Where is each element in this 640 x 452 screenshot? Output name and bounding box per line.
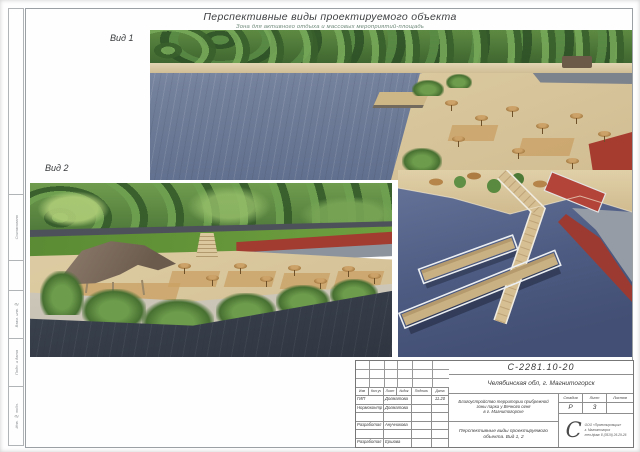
row5-role bbox=[356, 430, 384, 439]
plaza-bush bbox=[454, 176, 466, 188]
listov-label: Листов bbox=[607, 394, 633, 403]
margin-label-vzam: Взам. инв. № bbox=[14, 302, 19, 327]
listov-value bbox=[607, 403, 633, 414]
col-ndok: №док bbox=[397, 388, 412, 396]
row3-role bbox=[356, 413, 384, 422]
row2-sign bbox=[412, 405, 432, 414]
umbrella bbox=[566, 158, 579, 164]
umbrella bbox=[533, 181, 547, 188]
sheet-title-block: Перспективные виды проектируемого объект… bbox=[150, 11, 510, 30]
bush bbox=[82, 289, 146, 325]
wood-deck bbox=[517, 138, 574, 156]
col-data: Дата bbox=[432, 388, 449, 396]
shrub bbox=[446, 74, 472, 88]
margin-cell-inv: Инв. № подл. bbox=[9, 387, 23, 445]
stage-label: Стадия bbox=[559, 394, 583, 403]
row4-date bbox=[432, 422, 449, 431]
margin-cell-vzam: Взам. инв. № bbox=[9, 291, 23, 339]
logo-cell: С ООО «Проектировщик» г. Магнитогорск те… bbox=[559, 414, 633, 447]
project-line3: в г. Магнитогорске bbox=[483, 410, 523, 415]
drawing-sheet: Согласовано Взам. инв. № Подп. и дата Ин… bbox=[0, 0, 640, 452]
umbrella bbox=[206, 275, 219, 281]
row6-role: Разработал bbox=[356, 439, 384, 448]
umbrella bbox=[536, 123, 549, 129]
pier-scene-graphic bbox=[398, 170, 632, 357]
margin-cell-agreed: Согласовано bbox=[9, 195, 23, 261]
grid-line bbox=[412, 361, 413, 388]
umbrella bbox=[598, 131, 611, 137]
col-koluch: Кол.уч bbox=[369, 388, 384, 396]
company-line2: г. Магнитогорск bbox=[585, 428, 610, 432]
grid-line bbox=[369, 361, 370, 388]
row3-sign bbox=[412, 413, 432, 422]
row6-name: Ершова bbox=[384, 439, 412, 448]
umbrella bbox=[570, 113, 583, 119]
row1-sign bbox=[412, 396, 432, 405]
col-list: Лист bbox=[384, 388, 397, 396]
row1-date: 11.20 bbox=[432, 396, 449, 405]
grid-line bbox=[397, 361, 398, 388]
row2-role: Нормоконтр bbox=[356, 405, 384, 414]
project-name: Благоустройство территории прибрежной зо… bbox=[449, 394, 559, 422]
margin-cell-blank2 bbox=[9, 261, 23, 291]
plaza-bush bbox=[487, 179, 501, 193]
margin-label-inv: Инв. № подл. bbox=[14, 403, 19, 429]
company-line3: тел./факс 8 (3519) 26-29-26 bbox=[585, 433, 627, 437]
row5-date bbox=[432, 430, 449, 439]
company-logo: С bbox=[566, 420, 582, 441]
bush bbox=[40, 271, 84, 315]
drawing-title: Перспективные виды проектируемого объект… bbox=[449, 422, 559, 447]
row4-role: Разработал bbox=[356, 422, 384, 431]
stamp-minigrid bbox=[356, 361, 449, 388]
umbrella bbox=[429, 179, 443, 186]
row6-date bbox=[432, 439, 449, 448]
row2-name: Долматова bbox=[384, 405, 412, 414]
margin-cell-blank bbox=[9, 9, 23, 195]
grid-line bbox=[432, 361, 433, 388]
left-margin-strip: Согласовано Взам. инв. № Подп. и дата Ин… bbox=[8, 8, 24, 446]
title-stamp: Изм Кол.уч Лист №док Подпись Дата ГИП До… bbox=[355, 360, 634, 448]
shore-building bbox=[562, 56, 592, 68]
row5-sign bbox=[412, 430, 432, 439]
company-info: ООО «Проектировщик» г. Магнитогорск тел.… bbox=[585, 423, 627, 437]
umbrella bbox=[178, 263, 191, 269]
umbrella bbox=[506, 106, 519, 112]
margin-cell-podp: Подп. и дата bbox=[9, 339, 23, 387]
row2-date bbox=[432, 405, 449, 414]
view1-label: Вид 1 bbox=[110, 33, 134, 43]
row6-sign bbox=[412, 439, 432, 448]
row4-sign bbox=[412, 422, 432, 431]
umbrella bbox=[234, 263, 247, 269]
list-value: 3 bbox=[583, 403, 607, 414]
location: Челябинская обл, г. Магнитогорск bbox=[449, 375, 633, 394]
shrub bbox=[402, 148, 442, 170]
row1-name: Долматова bbox=[384, 396, 412, 405]
drawing-title-line2: объекта. Вид 1, 2 bbox=[483, 435, 523, 441]
umbrella bbox=[452, 136, 465, 142]
margin-label-podp: Подп. и дата bbox=[14, 350, 19, 375]
render-view1-panorama bbox=[150, 30, 632, 180]
row3-name bbox=[384, 413, 412, 422]
sheet-main-title: Перспективные виды проектируемого объект… bbox=[150, 11, 510, 23]
company-line1: ООО «Проектировщик» bbox=[585, 423, 622, 427]
umbrella bbox=[288, 265, 301, 271]
render-view2-plaza bbox=[30, 183, 392, 357]
render-view1-pier bbox=[398, 170, 632, 357]
list-label: Лист bbox=[583, 394, 607, 403]
grid-line bbox=[384, 361, 385, 388]
row5-name bbox=[384, 430, 412, 439]
umbrella bbox=[512, 148, 525, 154]
tree-band bbox=[150, 30, 632, 64]
margin-label-agreed: Согласовано bbox=[14, 215, 19, 239]
view2-label: Вид 2 bbox=[45, 163, 69, 173]
col-izm: Изм bbox=[356, 388, 369, 396]
doc-number: С-2281.10-20 bbox=[449, 361, 633, 375]
umbrella bbox=[314, 278, 327, 284]
shrub bbox=[412, 80, 444, 96]
row4-name: Анучникова bbox=[384, 422, 412, 431]
umbrella bbox=[445, 100, 458, 106]
umbrella bbox=[467, 173, 481, 180]
umbrella bbox=[260, 276, 273, 282]
umbrella bbox=[342, 266, 355, 272]
col-podpis: Подпись bbox=[412, 388, 432, 396]
umbrella bbox=[475, 115, 488, 121]
row3-date bbox=[432, 413, 449, 422]
row1-role: ГИП bbox=[356, 396, 384, 405]
beach-strip bbox=[150, 63, 632, 73]
stage-value: Р bbox=[559, 403, 583, 414]
